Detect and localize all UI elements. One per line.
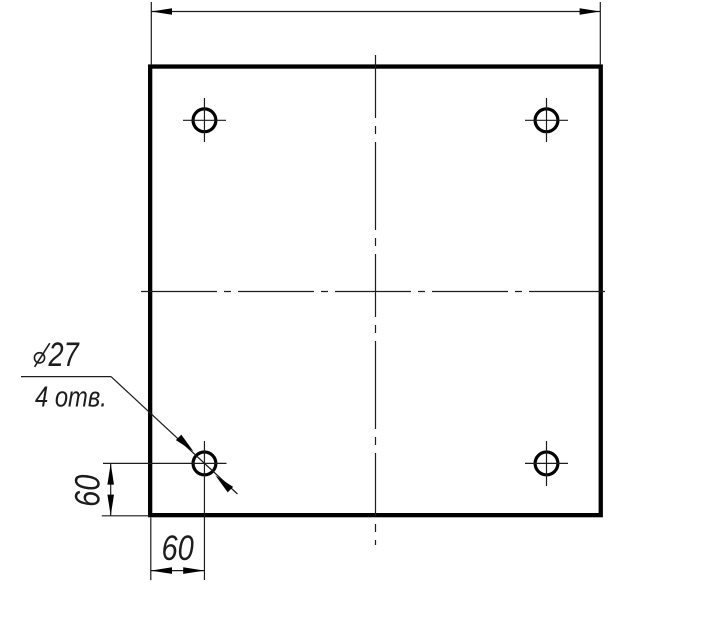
svg-text:4 omв.: 4 omв. — [35, 380, 107, 413]
svg-text:27: 27 — [48, 335, 81, 374]
svg-text:60: 60 — [68, 474, 107, 506]
svg-text:60: 60 — [162, 528, 194, 567]
